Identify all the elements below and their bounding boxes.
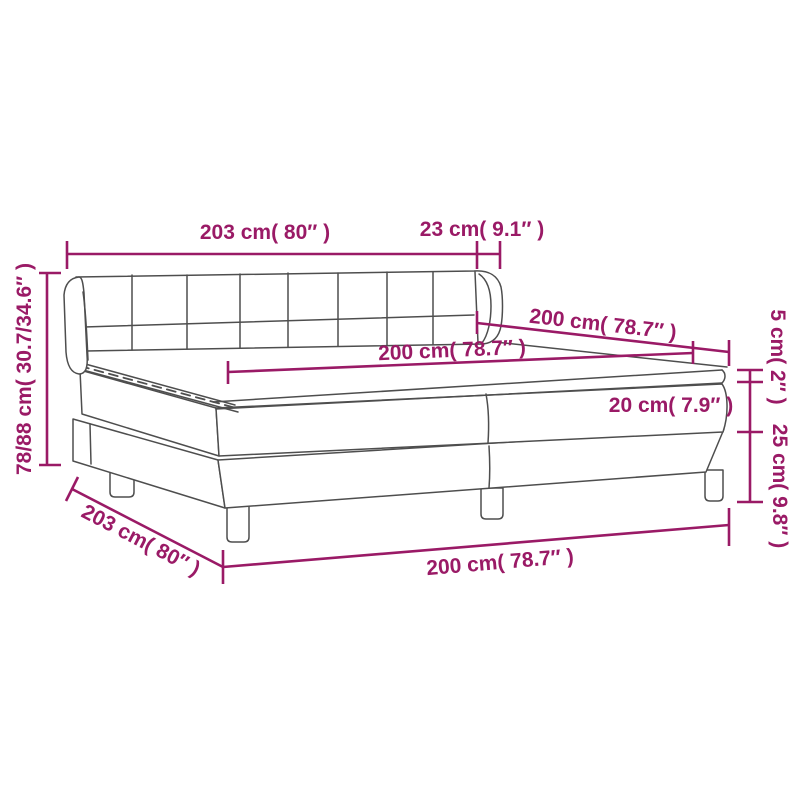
- leg: [705, 470, 723, 501]
- leg: [481, 488, 503, 519]
- base-height-label: 25 cm( 9.8″ ): [768, 424, 791, 548]
- base-center-seam: [489, 446, 490, 488]
- mattress-thickness-label: 20 cm( 7.9″ ): [609, 394, 733, 417]
- bed-diagram-canvas: 203 cm( 80″ ) 23 cm( 9.1″ ) 200 cm( 78.7…: [0, 0, 800, 800]
- headboard-width-label: 203 cm( 80″ ): [200, 221, 330, 244]
- leg: [227, 505, 249, 542]
- length-bottom-label: 200 cm( 78.7″ ): [425, 545, 574, 580]
- topper-thickness-label: 5 cm( 2″ ): [766, 309, 789, 404]
- wing-depth-label: 23 cm( 9.1″ ): [420, 218, 544, 241]
- headboard-left-wing: [64, 277, 88, 374]
- base-corner-seam: [90, 424, 91, 464]
- base-width-label: 203 cm( 80″ ): [78, 500, 204, 581]
- dimension-diagram: 203 cm( 80″ ) 23 cm( 9.1″ ) 200 cm( 78.7…: [0, 0, 800, 800]
- total-height-label: 78/88 cm( 30.7/34.6″ ): [13, 263, 36, 475]
